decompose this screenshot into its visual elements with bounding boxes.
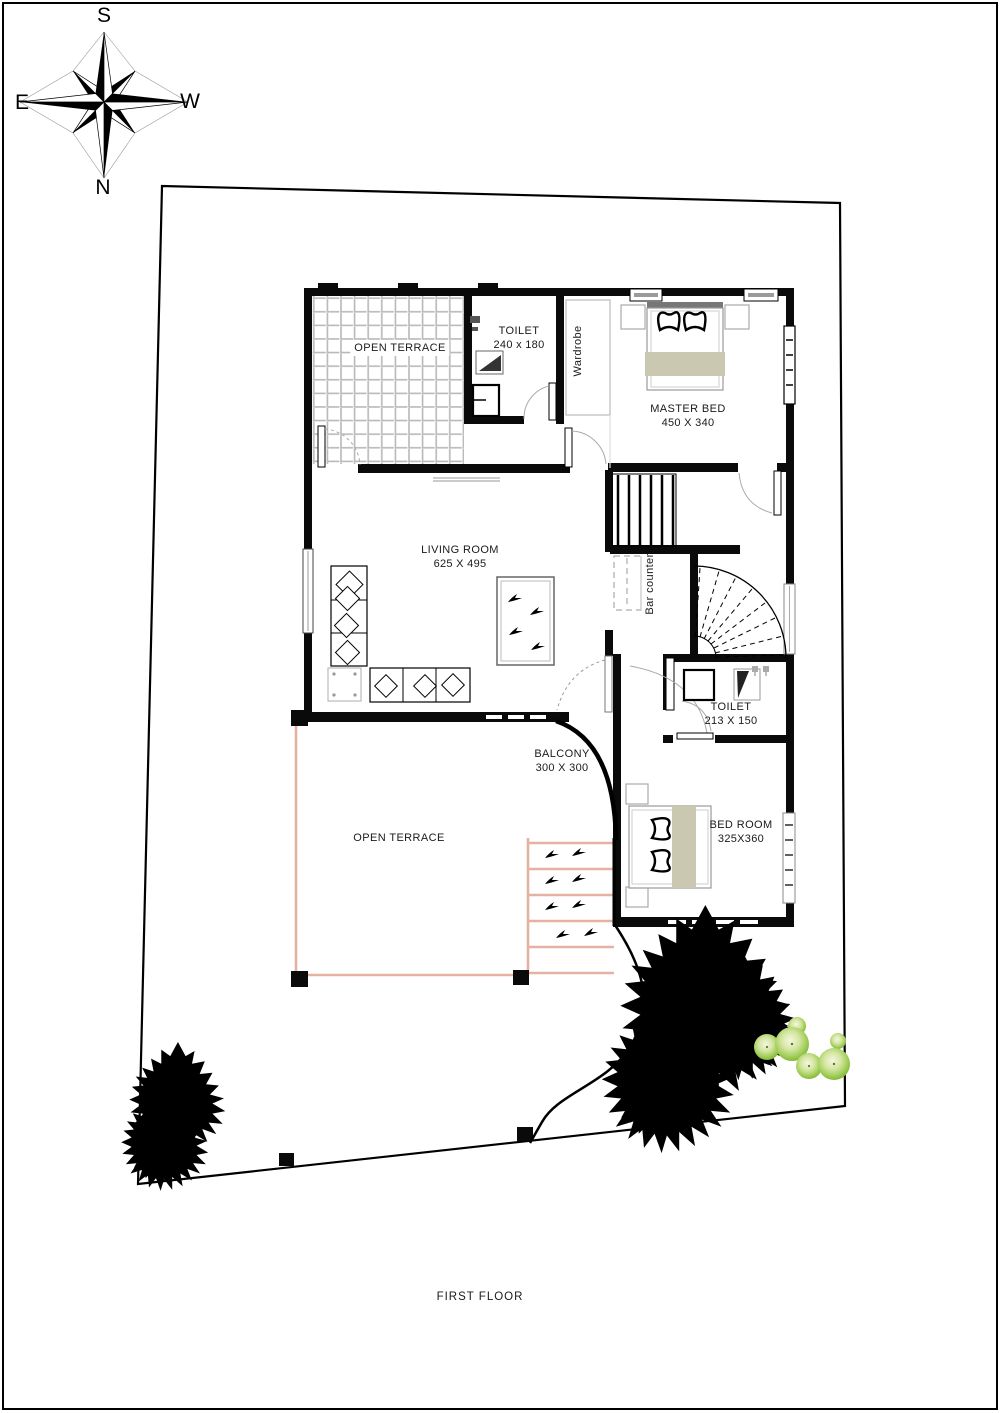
label-open-terrace-bottom: OPEN TERRACE bbox=[353, 831, 444, 845]
page-border bbox=[3, 3, 997, 1409]
living-room-furniture bbox=[328, 566, 554, 702]
label-bed-room: BED ROOM 325X360 bbox=[709, 818, 772, 846]
toilet-mid-dims: 213 X 150 bbox=[705, 714, 758, 728]
toilet-mid-fixtures bbox=[684, 666, 769, 700]
compass-label-north: N bbox=[95, 176, 110, 200]
living-room-name: LIVING ROOM bbox=[421, 544, 499, 556]
open-terrace-top-tiles bbox=[312, 296, 464, 464]
compass-rose-icon bbox=[20, 32, 188, 178]
label-bar-counter: Bar counter bbox=[643, 553, 657, 614]
label-open-terrace-top: OPEN TERRACE bbox=[350, 340, 449, 356]
master-bed-furniture bbox=[621, 302, 749, 390]
toilet-mid-name: TOILET bbox=[711, 701, 752, 713]
winder-stairs bbox=[694, 566, 786, 658]
balcony-curved-rail bbox=[556, 721, 616, 840]
toilet-top-dims: 240 x 180 bbox=[493, 338, 544, 352]
master-bed-dims: 450 X 340 bbox=[650, 416, 726, 430]
living-room-dims: 625 X 495 bbox=[421, 557, 499, 571]
staircase bbox=[612, 474, 676, 546]
label-wardrobe: Wardrobe bbox=[571, 325, 585, 376]
balcony-dims: 300 X 300 bbox=[534, 761, 589, 775]
bar-counter-outline bbox=[614, 556, 641, 610]
label-balcony: BALCONY 300 X 300 bbox=[534, 747, 589, 775]
terrace-columns bbox=[279, 710, 533, 1166]
label-toilet-mid: TOILET 213 X 150 bbox=[705, 700, 758, 728]
floor-plan-canvas: S E W N OPEN TERRACE TOILET 240 x 180 Wa… bbox=[0, 0, 1000, 1413]
bed-room-dims: 325X360 bbox=[709, 832, 772, 846]
bed-room-name: BED ROOM bbox=[709, 819, 772, 831]
label-living-room: LIVING ROOM 625 X 495 bbox=[421, 543, 499, 571]
master-bed-name: MASTER BED bbox=[650, 403, 726, 415]
compass-label-west: W bbox=[180, 90, 200, 114]
compass-label-south: S bbox=[97, 4, 111, 28]
toilet-top-name: TOILET bbox=[499, 325, 540, 337]
label-master-bed: MASTER BED 450 X 340 bbox=[650, 402, 726, 430]
balcony-name: BALCONY bbox=[534, 748, 589, 760]
label-toilet-top: TOILET 240 x 180 bbox=[493, 324, 544, 352]
step-foot-marks bbox=[545, 848, 598, 938]
page-title: FIRST FLOOR bbox=[437, 1291, 524, 1303]
floor-plan-drawing bbox=[0, 0, 1000, 1413]
compass-label-east: E bbox=[15, 91, 29, 115]
bed-room-furniture bbox=[626, 784, 711, 907]
